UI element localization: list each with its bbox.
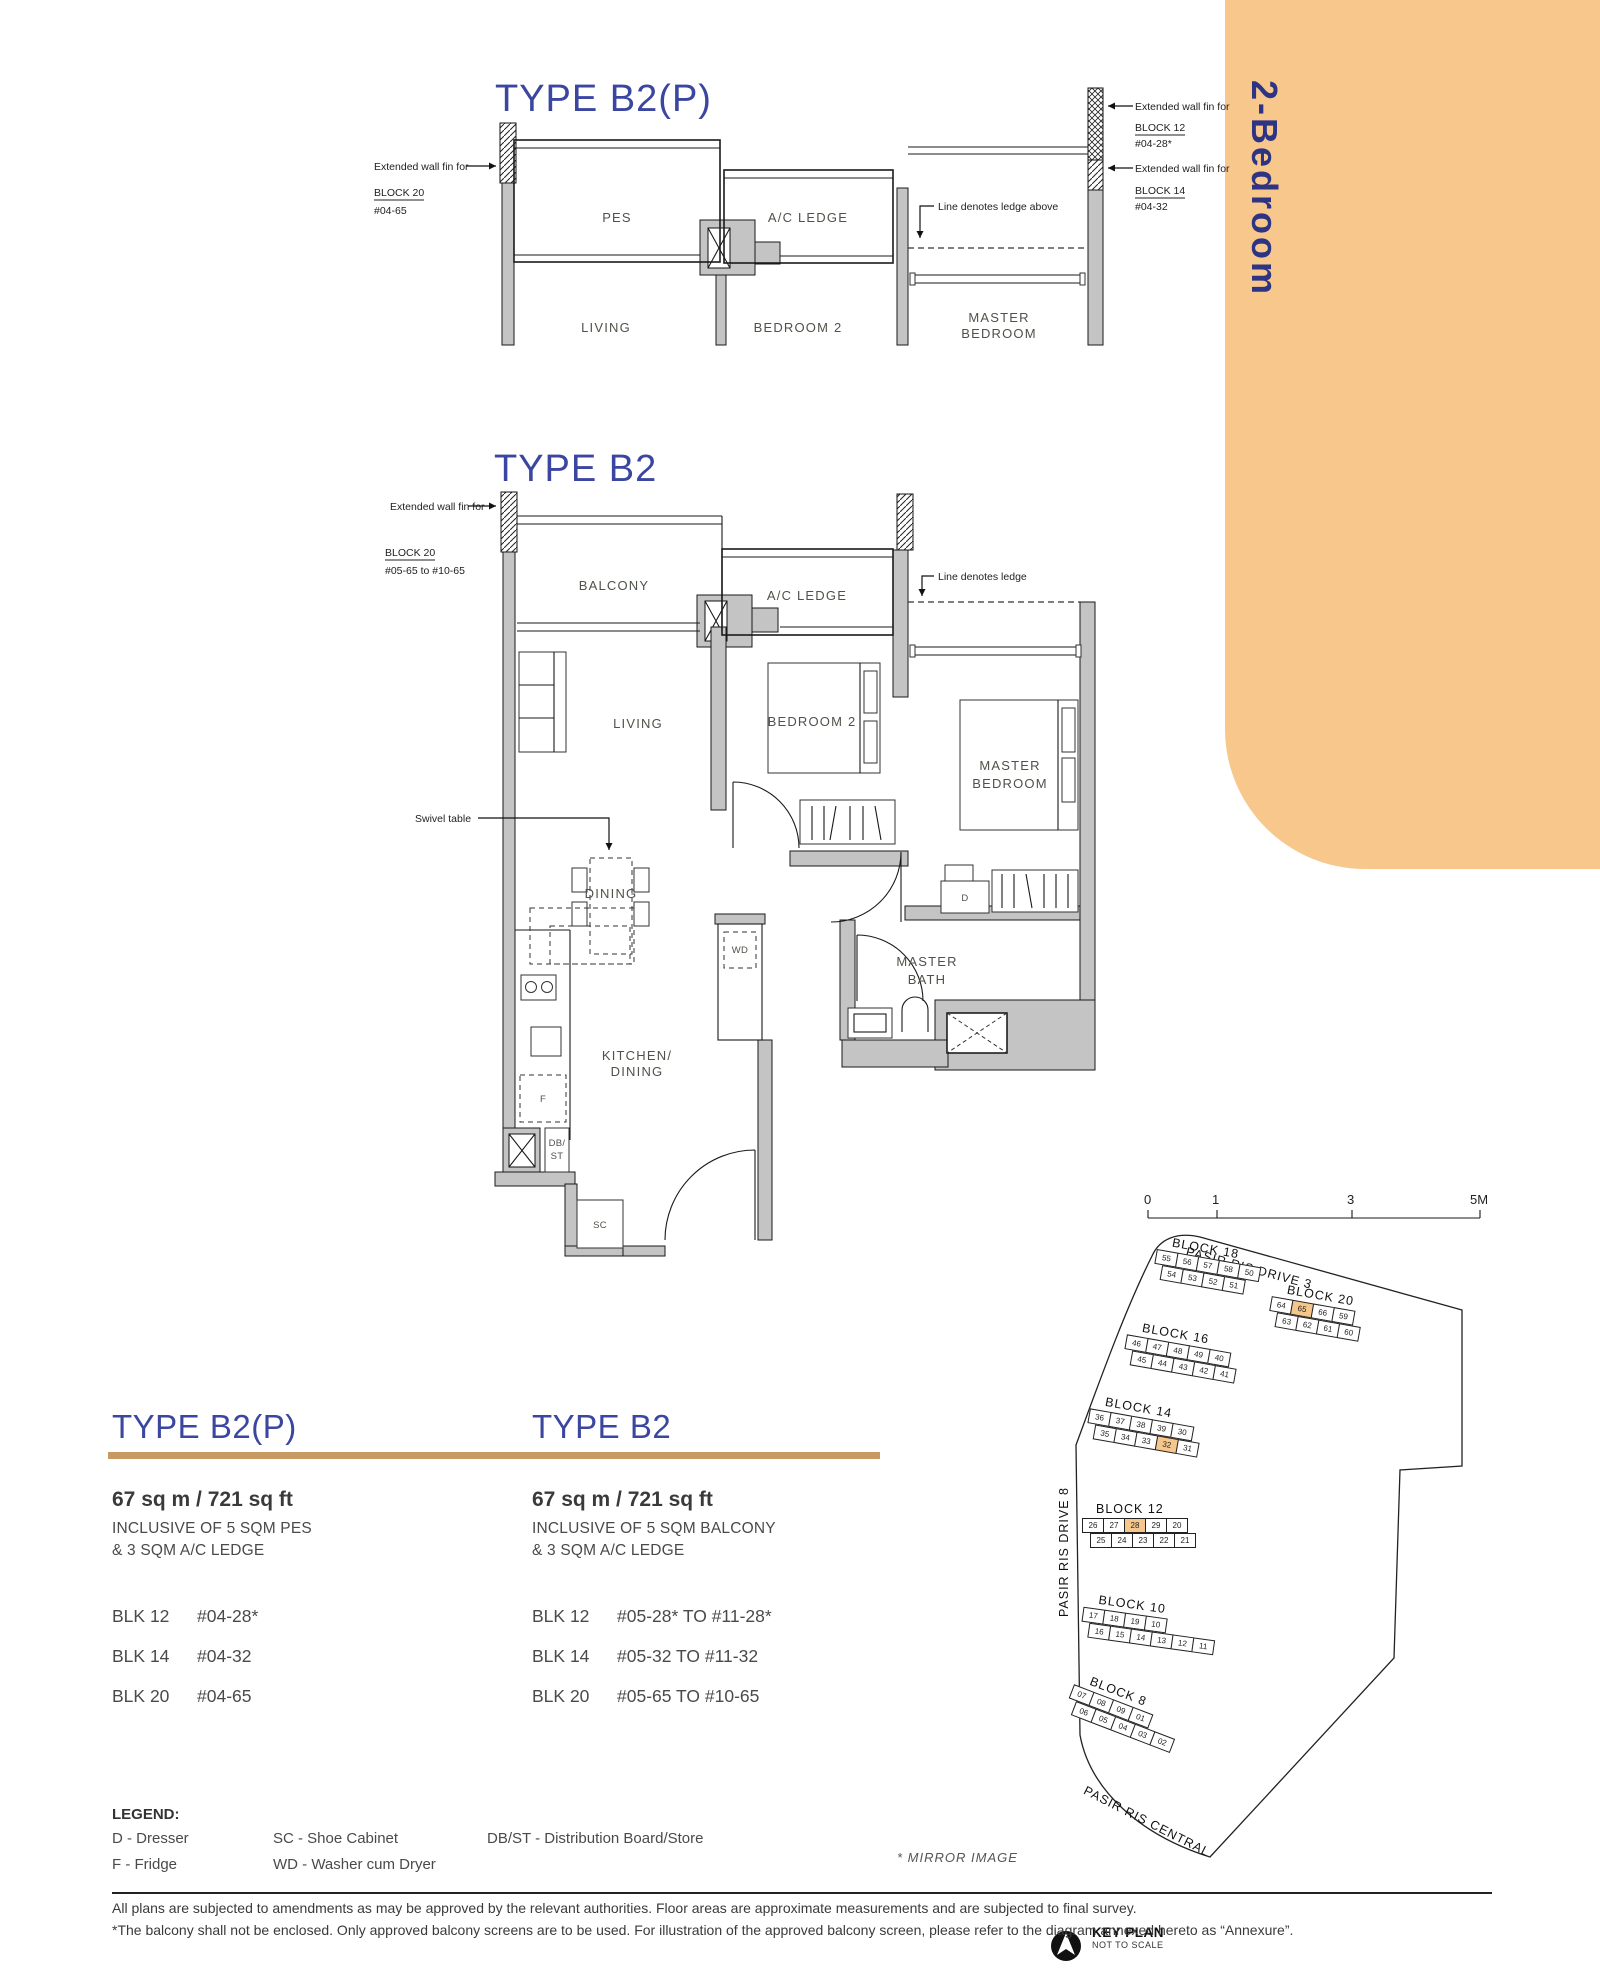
wd-column: [718, 924, 762, 1040]
room-label-kitchen-2: DINING: [611, 1064, 664, 1079]
b2p-area: 67 sq m / 721 sq ft: [112, 1488, 293, 1512]
b2p-unit-row: BLK 20#04-65: [112, 1686, 252, 1707]
dresser-top: [945, 865, 973, 881]
footer-disclaimer-1: All plans are subjected to amendments as…: [112, 1900, 1137, 1916]
bedroom-type-tab: 2-Bedroom: [1225, 0, 1600, 869]
gold-divider: [108, 1452, 880, 1459]
unit-number: #04-28*: [197, 1606, 258, 1626]
key-plan: 0 1 3 5M PASIR RIS DRIVE 3 PASIR RIS DRI…: [860, 1180, 1500, 1980]
wall-fin-note-left: Extended wall fin for: [374, 161, 469, 173]
blk-label: BLK 12: [112, 1606, 197, 1627]
b2p-unit-row: BLK 12#04-28*: [112, 1606, 258, 1627]
unit-number: #05-65 TO #10-65: [617, 1686, 759, 1706]
scale-5m: 5M: [1470, 1192, 1488, 1207]
room-label-living: LIVING: [613, 716, 663, 731]
key-plan-unit: 29: [1145, 1518, 1167, 1533]
room-label-ac-ledge: A/C LEDGE: [768, 210, 848, 225]
sink: [531, 1027, 561, 1056]
legend-title: LEGEND:: [112, 1806, 180, 1823]
block-label: BLOCK 12: [1096, 1502, 1195, 1516]
key-plan-unit: 27: [1103, 1518, 1125, 1533]
street-pasir-ris-central: PASIR RIS CENTRAL: [1081, 1783, 1212, 1859]
sofa: [519, 652, 566, 752]
label-dresser: D: [961, 893, 968, 904]
tab-label: 2-Bedroom: [1243, 80, 1285, 297]
block-units-row: 2524232221: [1090, 1533, 1195, 1547]
room-label-dining: DINING: [585, 886, 638, 901]
mirror-image-note: * MIRROR IMAGE: [897, 1850, 1018, 1865]
db-st-box: [545, 1128, 569, 1172]
legend-item: D - Dresser: [112, 1830, 189, 1847]
room-label-master-1: MASTER: [968, 310, 1029, 325]
key-plan-unit: 25: [1090, 1533, 1112, 1548]
footer-disclaimer-2: *The balcony shall not be enclosed. Only…: [112, 1922, 1293, 1938]
legend-item: F - Fridge: [112, 1856, 177, 1873]
wall-fin-note-right-1: Extended wall fin for: [1135, 101, 1230, 113]
floor-plan-page: 2-Bedroom TYPE B2(P): [0, 0, 1600, 1981]
label-fridge: F: [540, 1094, 546, 1105]
wall-fin-unit-right-1: #04-28*: [1135, 138, 1172, 150]
key-plan-unit: 26: [1082, 1518, 1104, 1533]
room-label-master-2: BEDROOM: [961, 326, 1037, 341]
info-b2-title: TYPE B2: [532, 1408, 671, 1446]
street-pasir-ris-drive-8: PASIR RIS DRIVE 8: [1057, 1487, 1071, 1617]
wall-fin-block-left: BLOCK 20: [374, 187, 424, 199]
swivel-table-note: Swivel table: [415, 813, 471, 825]
ledge-note: Line denotes ledge: [938, 571, 1027, 583]
key-plan-scale-bar: 0 1 3 5M: [1144, 1192, 1488, 1218]
info-b2p-title: TYPE B2(P): [112, 1408, 297, 1446]
b2p-inclusive-2: & 3 SQM A/C LEDGE: [112, 1542, 264, 1560]
label-sc: SC: [593, 1220, 607, 1231]
scale-0: 0: [1144, 1192, 1151, 1207]
room-label-bedroom2: BEDROOM 2: [754, 320, 843, 335]
b2-area: 67 sq m / 721 sq ft: [532, 1488, 713, 1512]
unit-number: #04-65: [197, 1686, 252, 1706]
b2-inclusive-1: INCLUSIVE OF 5 SQM BALCONY: [532, 1520, 776, 1538]
scale-1: 1: [1212, 1192, 1219, 1207]
dining-table: [590, 858, 632, 954]
wall-fin-block-right-2: BLOCK 14: [1135, 185, 1185, 197]
blk-label: BLK 12: [532, 1606, 617, 1627]
b2p-unit-row: BLK 14#04-32: [112, 1646, 252, 1667]
scale-3: 3: [1347, 1192, 1354, 1207]
key-plan-unit: 22: [1153, 1533, 1175, 1548]
wall-fin-note-right-2: Extended wall fin for: [1135, 163, 1230, 175]
room-label-bath-1: MASTER: [896, 954, 957, 969]
b2p-inclusive-1: INCLUSIVE OF 5 SQM PES: [112, 1520, 312, 1538]
blk-label: BLK 14: [532, 1646, 617, 1667]
b2-unit-row: BLK 12#05-28* TO #11-28*: [532, 1606, 772, 1627]
footer-divider: [112, 1892, 1492, 1894]
plan-b2-drawing: BALCONY A/C LEDGE LIVING BEDROOM 2 MASTE…: [360, 440, 1150, 1260]
vanity: [848, 1008, 892, 1038]
unit-number: #05-28* TO #11-28*: [617, 1606, 772, 1626]
blk-label: BLK 14: [112, 1646, 197, 1667]
room-label-bedroom2: BEDROOM 2: [768, 714, 857, 729]
room-label-wd: WD: [732, 945, 748, 956]
room-label-pes: PES: [602, 210, 632, 225]
b2-annotations: Extended wall fin for BLOCK 20 #05-65 to…: [385, 501, 1027, 850]
wall-fin-block-left: BLOCK 20: [385, 547, 435, 559]
wall-fin-unit-right-2: #04-32: [1135, 201, 1168, 213]
wall-fin-unit-left: #04-65: [374, 205, 407, 217]
room-label-balcony: BALCONY: [579, 578, 650, 593]
key-plan-unit: 11: [1191, 1637, 1215, 1655]
legend-item: WD - Washer cum Dryer: [273, 1856, 436, 1873]
legend-item: SC - Shoe Cabinet: [273, 1830, 398, 1847]
wall-fin-note-left: Extended wall fin for: [390, 501, 485, 513]
b2-inclusive-2: & 3 SQM A/C LEDGE: [532, 1542, 684, 1560]
room-label-bath-2: BATH: [908, 972, 947, 987]
b2-furniture: [509, 652, 1078, 1248]
key-plan-unit: 20: [1166, 1518, 1188, 1533]
room-label-ac-ledge: A/C LEDGE: [767, 588, 847, 603]
key-plan-unit: 28: [1124, 1518, 1146, 1533]
ledge-note: Line denotes ledge above: [938, 201, 1058, 213]
wall-fin-unit-left: #05-65 to #10-65: [385, 565, 465, 577]
room-label-living: LIVING: [581, 320, 631, 335]
hob: [521, 975, 556, 1000]
unit-number: #04-32: [197, 1646, 252, 1666]
label-db-1: DB/: [549, 1138, 566, 1149]
key-plan-unit: 21: [1174, 1533, 1196, 1548]
b2-unit-row: BLK 20#05-65 TO #10-65: [532, 1686, 759, 1707]
wall-fin-block-right-1: BLOCK 12: [1135, 122, 1185, 134]
blk-label: BLK 20: [532, 1686, 617, 1707]
block-units-row: 2627282920: [1082, 1518, 1195, 1532]
key-plan-unit: 24: [1111, 1533, 1133, 1548]
room-label-master-1: MASTER: [979, 758, 1040, 773]
key-plan-unit: 23: [1132, 1533, 1154, 1548]
room-label-master-2: BEDROOM: [972, 776, 1048, 791]
not-to-scale-label: NOT TO SCALE: [1092, 1940, 1164, 1950]
room-label-kitchen-1: KITCHEN/: [602, 1048, 672, 1063]
legend-item: DB/ST - Distribution Board/Store: [487, 1830, 703, 1847]
b2-unit-row: BLK 14#05-32 TO #11-32: [532, 1646, 758, 1667]
unit-number: #05-32 TO #11-32: [617, 1646, 758, 1666]
plan-b2p-drawing: PES A/C LEDGE LIVING BEDROOM 2 MASTER BE…: [360, 70, 1240, 380]
toilet: [902, 997, 928, 1032]
label-db-2: ST: [551, 1151, 564, 1162]
key-plan-block-12: BLOCK 12 2627282920 2524232221: [1082, 1502, 1195, 1547]
blk-label: BLK 20: [112, 1686, 197, 1707]
wardrobe-master: [992, 870, 1078, 912]
